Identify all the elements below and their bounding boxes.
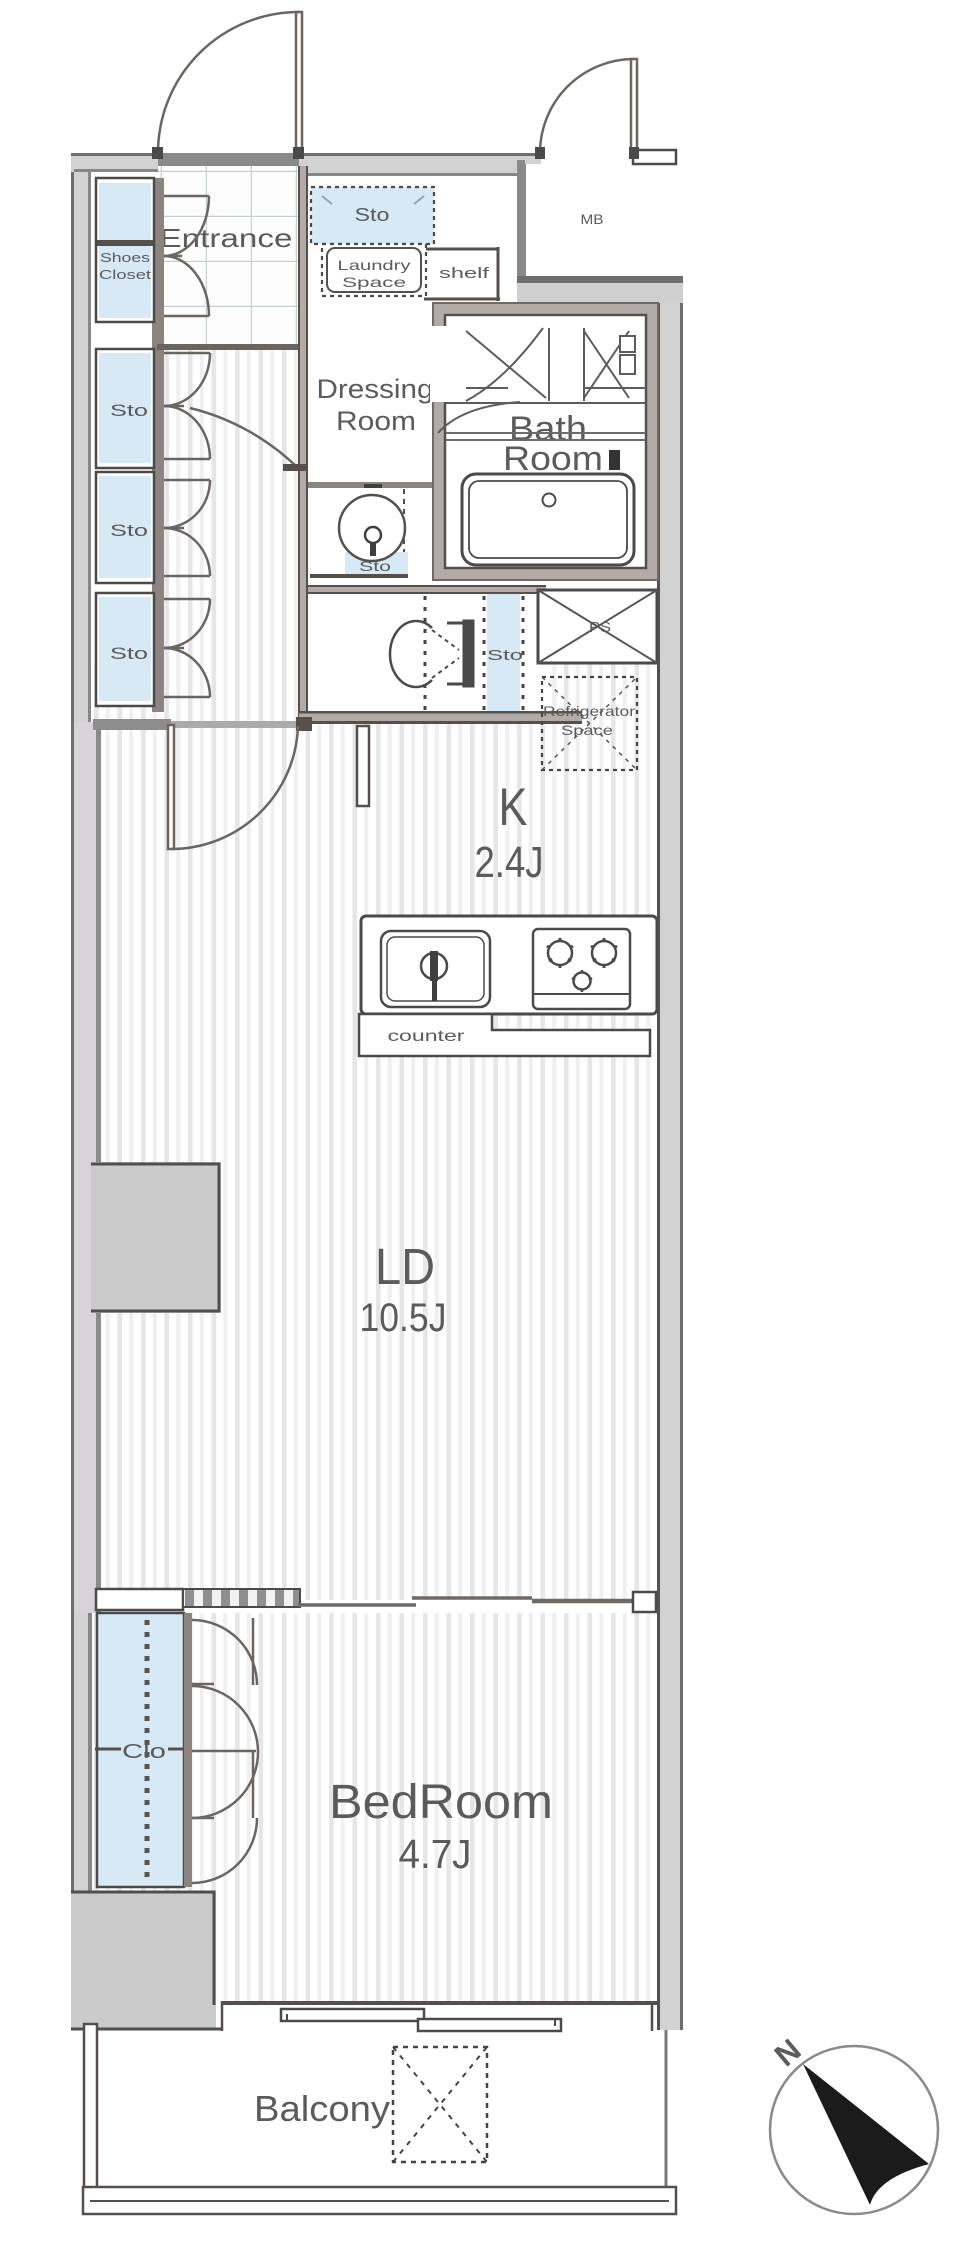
svg-text:Sto: Sto — [110, 644, 148, 663]
svg-text:Space: Space — [342, 274, 406, 290]
svg-text:Sto: Sto — [487, 647, 523, 664]
svg-text:Closet: Closet — [99, 267, 152, 282]
svg-text:Room: Room — [336, 406, 416, 436]
svg-text:Sto: Sto — [110, 521, 148, 540]
svg-text:Room: Room — [503, 440, 603, 478]
svg-text:Refrigerator: Refrigerator — [543, 703, 635, 719]
svg-text:Shoes: Shoes — [100, 250, 151, 265]
svg-text:Sto: Sto — [359, 558, 391, 574]
svg-text:Sto: Sto — [355, 205, 390, 225]
svg-text:LD: LD — [375, 1238, 435, 1295]
svg-text:2.4J: 2.4J — [475, 838, 544, 887]
svg-text:BedRoom: BedRoom — [329, 1776, 553, 1829]
svg-text:Space: Space — [561, 722, 613, 738]
svg-text:counter: counter — [388, 1028, 466, 1045]
svg-text:Balcony: Balcony — [254, 2088, 390, 2129]
svg-text:PS: PS — [589, 619, 611, 636]
svg-text:Entrance: Entrance — [160, 223, 293, 253]
svg-text:MB: MB — [581, 211, 604, 227]
svg-text:Sto: Sto — [110, 401, 148, 420]
svg-text:K: K — [499, 778, 528, 837]
svg-text:10.5J: 10.5J — [360, 1296, 447, 1340]
svg-text:Clo: Clo — [122, 1741, 166, 1763]
svg-text:Laundry: Laundry — [338, 257, 411, 273]
svg-text:4.7J: 4.7J — [399, 1831, 472, 1877]
svg-text:Dressing: Dressing — [317, 374, 434, 404]
svg-text:shelf: shelf — [439, 265, 490, 282]
